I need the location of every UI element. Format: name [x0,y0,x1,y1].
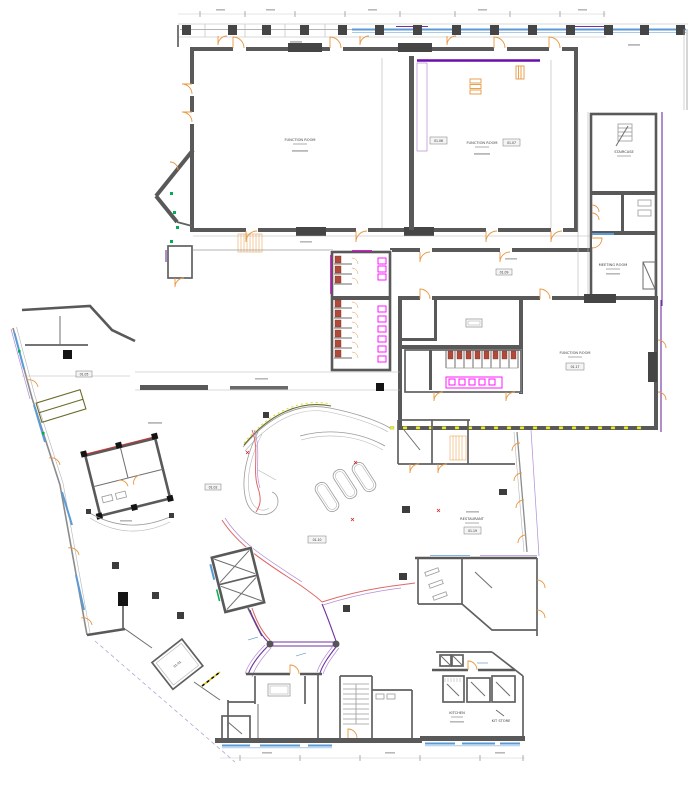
floor-plan-canvas: FUNCTION ROOM 01.06 FUNCTION ROOM 01.07 [0,0,692,796]
store-tag: 01.05 [80,373,89,377]
room-tag: 01.19 [468,529,477,533]
room-tag: 01.17 [571,365,580,369]
barrier [202,672,220,686]
tables [425,568,448,601]
rotated-core [80,433,174,531]
hall-tag: 01.09 [500,271,509,275]
northwest-block: 01.05 [22,306,135,422]
room-name: FUNCTION ROOM [466,141,497,145]
sofa-pods [313,460,378,514]
southwest-corner: 01.01 [87,592,235,762]
south-rooms-left [215,665,340,748]
corridor-lobby [135,372,400,391]
room-tag: 01.07 [507,141,516,145]
corridor-upper: 01.09 [193,236,602,275]
conference-block: FUNCTION ROOM 01.06 FUNCTION ROOM 01.07 [182,37,578,242]
dimension-line-top [178,9,606,17]
reference-marks [246,451,440,521]
lobby-tag: 01.10 [313,538,322,542]
floor-plan-drawing: FUNCTION ROOM 01.06 FUNCTION ROOM 01.07 [0,0,692,796]
hall-tag: 01.02 [209,486,218,490]
lift-block [208,546,270,642]
room-name: FUNCTION ROOM [284,138,315,142]
south-rooms-right: KITCHEN KIT STORE [420,652,525,746]
room-name: KIT STORE [492,719,512,723]
toilet-core [330,250,392,372]
room-label-staircase: STAIRCASE [614,150,634,154]
room-name: RESTAURANT [460,517,485,521]
stair-hatch [450,436,466,460]
restaurant-east-wall: RESTAURANT 01.19 [398,420,539,556]
room-name: FUNCTION ROOM [559,351,590,355]
room-name: KITCHEN [449,711,465,715]
room-label-kitchen: KITCHEN [449,711,465,723]
room-tag: 01.06 [434,139,443,143]
south-stair [340,676,422,743]
stair-treads [343,684,369,724]
room-label-kitchen-store: KIT STORE [492,710,512,723]
door-arc [218,36,227,45]
room-label-restaurant: RESTAURANT 01.19 [460,511,485,534]
dividing-wall [409,56,414,230]
small-store [222,716,250,740]
room-name: MEETING ROOM [599,263,628,267]
door-arc [360,36,369,45]
east-wing: STAIRCASE MEETING ROOM [578,112,662,306]
entrance-funnels [245,604,340,677]
dimension-line-bottom [220,752,525,761]
south-office-block [415,556,545,637]
door-arc [447,36,456,45]
feature-ramp [36,390,86,423]
stair-hatch [238,234,262,252]
